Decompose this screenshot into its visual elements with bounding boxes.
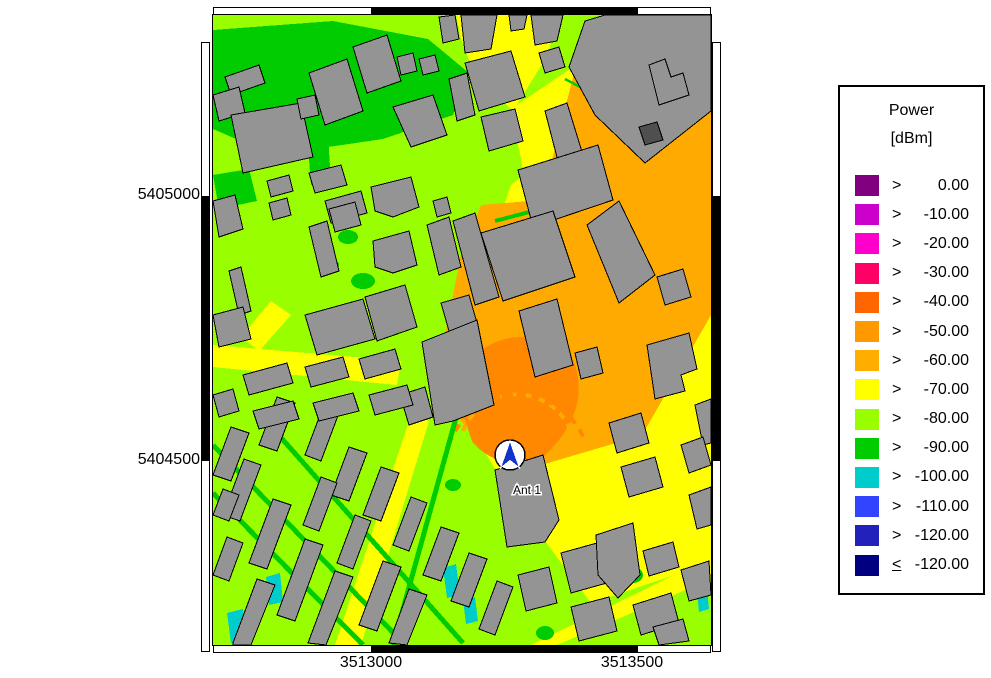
- legend-operator: >: [892, 352, 910, 370]
- legend-color-swatch: [855, 233, 879, 254]
- legend-row: >-20.00: [855, 229, 969, 258]
- legend-operator: >: [892, 293, 910, 311]
- legend-row: >-120.00: [855, 521, 969, 550]
- legend-row: >-50.00: [855, 317, 969, 346]
- legend-row: >-40.00: [855, 288, 969, 317]
- legend-row: >-10.00: [855, 200, 969, 229]
- legend-threshold-value: -120.00: [910, 527, 969, 545]
- legend-threshold-value: -100.00: [910, 468, 969, 486]
- legend-rows: >0.00>-10.00>-20.00>-30.00>-40.00>-50.00…: [855, 171, 969, 580]
- x-axis-tick-label: 3513000: [271, 654, 471, 672]
- legend-color-swatch: [855, 350, 879, 371]
- map-scale-bar-left: [201, 42, 210, 652]
- legend-operator: >: [892, 527, 910, 545]
- legend-operator: >: [892, 439, 910, 457]
- legend-color-swatch: [855, 496, 879, 517]
- legend-row: >-80.00: [855, 405, 969, 434]
- antenna-label: Ant 1: [513, 483, 541, 497]
- scale-bar-black-segment: [371, 645, 638, 652]
- legend-color-swatch: [855, 409, 879, 430]
- legend-threshold-value: -70.00: [910, 381, 969, 399]
- legend-operator: >: [892, 498, 910, 516]
- legend-threshold-value: -10.00: [910, 206, 969, 224]
- legend-row: >-110.00: [855, 492, 969, 521]
- y-axis-tick-label: 5404500: [60, 451, 200, 469]
- legend-title: Power: [840, 97, 983, 125]
- legend-threshold-value: -20.00: [910, 235, 969, 253]
- legend-threshold-value: -30.00: [910, 264, 969, 282]
- legend-threshold-value: -40.00: [910, 293, 969, 311]
- legend-color-swatch: [855, 438, 879, 459]
- legend-row: >-30.00: [855, 259, 969, 288]
- legend-row: >-90.00: [855, 434, 969, 463]
- legend-row: >-60.00: [855, 346, 969, 375]
- legend-row: >-100.00: [855, 463, 969, 492]
- legend-panel: Power [dBm] >0.00>-10.00>-20.00>-30.00>-…: [838, 85, 985, 595]
- legend-operator: >: [892, 323, 910, 341]
- legend-unit: [dBm]: [840, 125, 983, 153]
- legend-color-swatch: [855, 555, 879, 576]
- legend-color-swatch: [855, 321, 879, 342]
- legend-threshold-value: -90.00: [910, 439, 969, 457]
- scale-bar-black-segment: [713, 196, 720, 461]
- legend-row: >-70.00: [855, 375, 969, 404]
- legend-operator: >: [892, 177, 910, 195]
- legend-color-swatch: [855, 525, 879, 546]
- legend-operator: >: [892, 264, 910, 282]
- coverage-map-svg: Ant 1: [213, 15, 711, 645]
- legend-row: >0.00: [855, 171, 969, 200]
- legend-operator: >: [892, 468, 910, 486]
- scale-bar-black-segment: [202, 196, 209, 461]
- legend-threshold-value: -50.00: [910, 323, 969, 341]
- y-axis-tick-label: 5405000: [60, 186, 200, 204]
- legend-color-swatch: [855, 263, 879, 284]
- legend-operator: >: [892, 410, 910, 428]
- legend-threshold-value: 0.00: [910, 177, 969, 195]
- legend-color-swatch: [855, 467, 879, 488]
- legend-operator: <: [892, 556, 910, 574]
- legend-threshold-value: -120.00: [910, 556, 969, 574]
- x-axis-tick-label: 3513500: [532, 654, 732, 672]
- legend-row: <-120.00: [855, 550, 969, 579]
- legend-color-swatch: [855, 379, 879, 400]
- legend-threshold-value: -110.00: [910, 498, 969, 516]
- legend-operator: >: [892, 381, 910, 399]
- legend-color-swatch: [855, 292, 879, 313]
- coverage-plot-window: 5405000 5404500 3513000 3513500: [0, 0, 991, 678]
- coverage-map[interactable]: Ant 1: [212, 14, 712, 646]
- legend-threshold-value: -60.00: [910, 352, 969, 370]
- legend-color-swatch: [855, 175, 879, 196]
- legend-operator: >: [892, 206, 910, 224]
- legend-threshold-value: -80.00: [910, 410, 969, 428]
- map-scale-bar-right: [712, 42, 721, 652]
- legend-operator: >: [892, 235, 910, 253]
- legend-color-swatch: [855, 204, 879, 225]
